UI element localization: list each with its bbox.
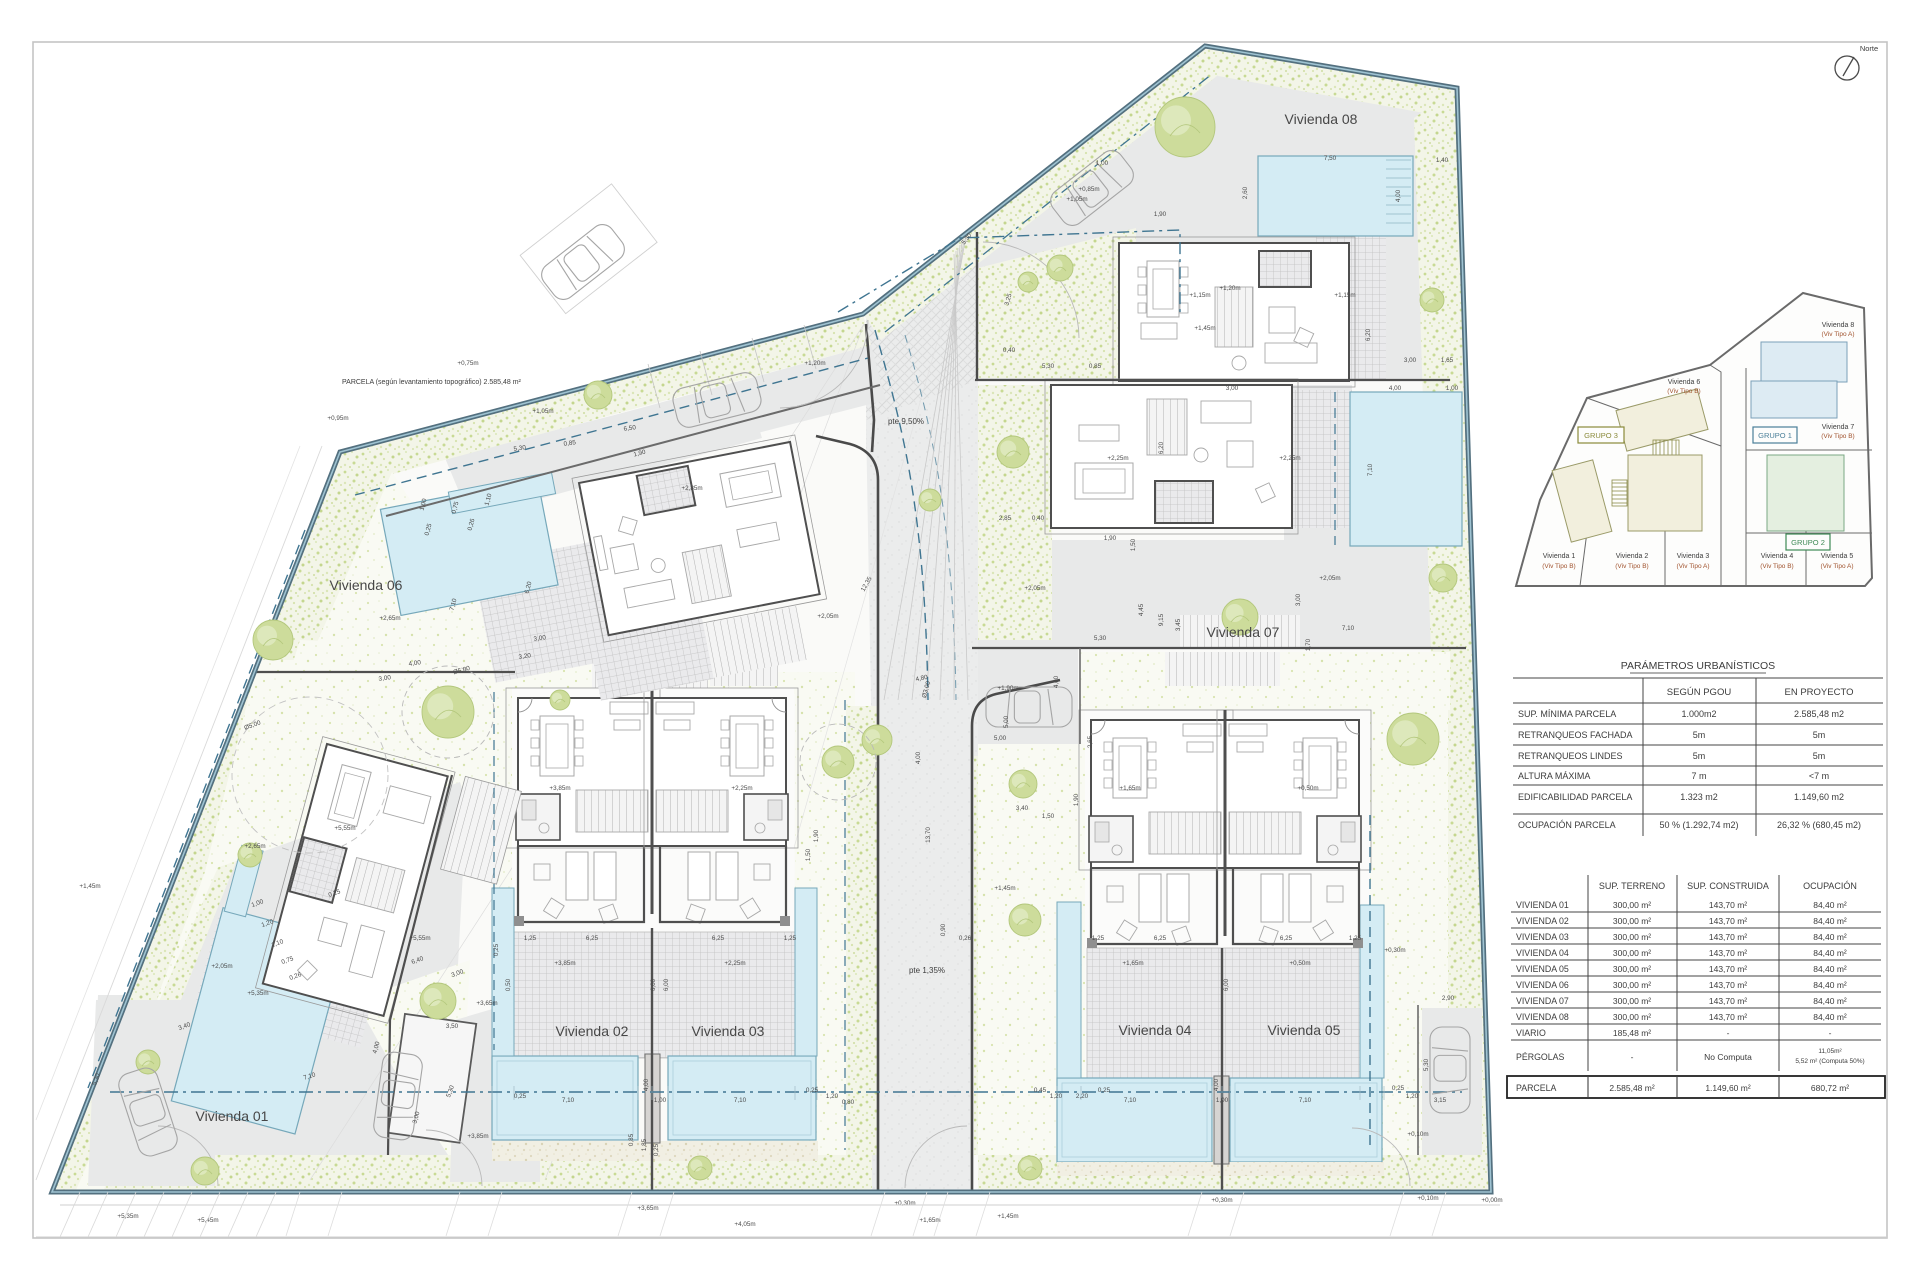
svg-text:+2,25m: +2,25m [724, 960, 745, 967]
svg-text:1,20: 1,20 [1406, 1093, 1419, 1100]
svg-text:pte 1,35%: pte 1,35% [909, 966, 945, 975]
svg-text:300,00 m²: 300,00 m² [1613, 996, 1651, 1006]
svg-text:VIVIENDA 04: VIVIENDA 04 [1516, 948, 1569, 958]
svg-text:1.149,60 m2: 1.149,60 m2 [1794, 792, 1844, 802]
svg-text:1,85: 1,85 [641, 1138, 648, 1151]
svg-text:+4,05m: +4,05m [734, 1221, 755, 1228]
svg-text:4,00: 4,00 [1395, 189, 1402, 202]
svg-text:6,00: 6,00 [650, 978, 657, 991]
svg-text:1,65: 1,65 [1441, 357, 1454, 364]
svg-text:+1,05m: +1,05m [1066, 196, 1087, 203]
svg-text:EDIFICABILIDAD PARCELA: EDIFICABILIDAD PARCELA [1518, 792, 1632, 802]
svg-text:0,85: 0,85 [1089, 363, 1102, 370]
svg-text:11,05m²: 11,05m² [1818, 1048, 1842, 1055]
svg-text:0,25: 0,25 [653, 1143, 660, 1156]
svg-text:Vivienda 06: Vivienda 06 [330, 577, 403, 593]
svg-text:3,00: 3,00 [1295, 593, 1302, 606]
svg-text:VIVIENDA 02: VIVIENDA 02 [1516, 916, 1569, 926]
svg-text:(Viv Tipo A): (Viv Tipo A) [1821, 331, 1854, 338]
svg-text:(Viv Tipo B): (Viv Tipo B) [1542, 563, 1575, 570]
svg-text:+1,20m: +1,20m [1219, 285, 1240, 292]
svg-text:1,25: 1,25 [524, 935, 537, 942]
svg-text:143,70 m²: 143,70 m² [1709, 1012, 1747, 1022]
svg-text:VIVIENDA 06: VIVIENDA 06 [1516, 980, 1569, 990]
svg-text:5,52 m² (Computa 50%): 5,52 m² (Computa 50%) [1795, 1058, 1864, 1065]
svg-text:50 % (1.292,74 m2): 50 % (1.292,74 m2) [1659, 820, 1738, 830]
svg-text:+0,95m: +0,95m [327, 415, 348, 422]
svg-text:0,25: 0,25 [1098, 1087, 1111, 1094]
svg-text:5m: 5m [1813, 730, 1826, 740]
svg-text:+1,15m: +1,15m [1334, 292, 1355, 299]
svg-text:+0,10m: +0,10m [1417, 1195, 1438, 1202]
svg-text:0,85: 0,85 [628, 1133, 635, 1146]
svg-text:Vivienda 7: Vivienda 7 [1822, 424, 1855, 431]
svg-text:pte 9,50%: pte 9,50% [888, 417, 924, 426]
svg-text:1,90: 1,90 [1073, 793, 1080, 806]
svg-text:5m: 5m [1813, 751, 1826, 761]
svg-text:6,25: 6,25 [586, 935, 599, 942]
svg-text:1,70: 1,70 [1305, 638, 1312, 651]
svg-text:3,00: 3,00 [1226, 385, 1239, 392]
svg-text:1,20: 1,20 [1050, 1093, 1063, 1100]
svg-text:0,26: 0,26 [959, 935, 972, 942]
svg-text:185,48 m²: 185,48 m² [1613, 1028, 1651, 1038]
svg-text:Vivienda 2: Vivienda 2 [1616, 553, 1649, 560]
svg-text:1,50: 1,50 [805, 848, 812, 861]
svg-text:143,70 m²: 143,70 m² [1709, 900, 1747, 910]
svg-text:84,40 m²: 84,40 m² [1813, 996, 1847, 1006]
svg-text:+5,35m: +5,35m [117, 1213, 138, 1220]
svg-text:6,20: 6,20 [1158, 441, 1165, 454]
svg-text:4,00: 4,00 [1389, 385, 1402, 392]
svg-text:2.585,48 m²: 2.585,48 m² [1609, 1083, 1655, 1093]
svg-text:84,40 m²: 84,40 m² [1813, 932, 1847, 942]
svg-text:5,00: 5,00 [1003, 715, 1010, 728]
svg-text:0,80: 0,80 [842, 1099, 855, 1106]
svg-text:0,90: 0,90 [940, 923, 947, 936]
svg-text:7,50: 7,50 [1324, 155, 1337, 162]
svg-text:SEGÚN PGOU: SEGÚN PGOU [1667, 687, 1732, 698]
svg-text:+3,65m: +3,65m [476, 1000, 497, 1007]
svg-text:+3,65m: +3,65m [637, 1205, 658, 1212]
svg-text:+1,45m: +1,45m [79, 883, 100, 890]
svg-text:5,30: 5,30 [1423, 1058, 1430, 1071]
svg-text:300,00 m²: 300,00 m² [1613, 932, 1651, 942]
svg-text:PÉRGOLAS: PÉRGOLAS [1516, 1052, 1565, 1062]
svg-text:SUP. MÍNIMA PARCELA: SUP. MÍNIMA PARCELA [1518, 709, 1616, 719]
svg-text:1,00: 1,00 [1096, 160, 1109, 167]
svg-text:+2,05m: +2,05m [817, 613, 838, 620]
svg-text:+1,05m: +1,05m [532, 408, 553, 415]
svg-text:-: - [1829, 1028, 1832, 1038]
svg-text:+2,05m: +2,05m [211, 963, 232, 970]
svg-text:84,40 m²: 84,40 m² [1813, 980, 1847, 990]
svg-text:+2,25m: +2,25m [731, 785, 752, 792]
svg-text:680,72 m²: 680,72 m² [1811, 1083, 1849, 1093]
svg-text:84,40 m²: 84,40 m² [1813, 916, 1847, 926]
svg-text:2,60: 2,60 [1242, 186, 1249, 199]
svg-text:Vivienda 02: Vivienda 02 [556, 1023, 629, 1039]
svg-text:+2,25m: +2,25m [1107, 455, 1128, 462]
svg-text:ALTURA MÁXIMA: ALTURA MÁXIMA [1518, 771, 1590, 781]
svg-text:7,10: 7,10 [734, 1097, 747, 1104]
svg-text:<7 m: <7 m [1809, 771, 1829, 781]
svg-text:Vivienda 07: Vivienda 07 [1207, 624, 1280, 640]
svg-text:6,25: 6,25 [1280, 935, 1293, 942]
svg-text:1,90: 1,90 [813, 829, 820, 842]
svg-text:6,00: 6,00 [663, 978, 670, 991]
svg-text:84,40 m²: 84,40 m² [1813, 948, 1847, 958]
svg-text:1,50: 1,50 [1130, 538, 1137, 551]
svg-text:+5,55m: +5,55m [334, 825, 355, 832]
svg-text:143,70 m²: 143,70 m² [1709, 996, 1747, 1006]
svg-text:PARÁMETROS URBANÍSTICOS: PARÁMETROS URBANÍSTICOS [1621, 659, 1775, 672]
svg-text:1,00: 1,00 [1446, 385, 1459, 392]
svg-text:+2,25m: +2,25m [1279, 455, 1300, 462]
svg-text:1.000m2: 1.000m2 [1681, 709, 1716, 719]
svg-text:+1,65m: +1,65m [1119, 785, 1140, 792]
svg-text:VIVIENDA 03: VIVIENDA 03 [1516, 932, 1569, 942]
svg-text:4,00: 4,00 [1053, 675, 1060, 688]
svg-text:+1,20m: +1,20m [804, 360, 825, 367]
svg-text:3,40: 3,40 [1016, 805, 1029, 812]
svg-text:4,00: 4,00 [1213, 1078, 1220, 1091]
svg-text:+0,85m: +0,85m [1078, 186, 1099, 193]
svg-text:5,00: 5,00 [994, 735, 1007, 742]
svg-text:+0,30m: +0,30m [1384, 947, 1405, 954]
svg-text:-: - [1727, 1028, 1730, 1038]
svg-text:7,10: 7,10 [1342, 625, 1355, 632]
svg-text:84,40 m²: 84,40 m² [1813, 964, 1847, 974]
svg-text:300,00 m²: 300,00 m² [1613, 1012, 1651, 1022]
svg-text:6,25: 6,25 [1154, 935, 1167, 942]
svg-text:4,00: 4,00 [915, 751, 922, 764]
svg-text:0,45: 0,45 [1034, 1087, 1047, 1094]
svg-text:Vivienda 5: Vivienda 5 [1821, 553, 1854, 560]
svg-text:(Viv Tipo B): (Viv Tipo B) [1615, 563, 1648, 570]
svg-text:-: - [1631, 1052, 1634, 1062]
svg-text:+0,00m: +0,00m [1481, 1197, 1502, 1204]
svg-text:26,32 % (680,45 m2): 26,32 % (680,45 m2) [1777, 820, 1861, 830]
svg-text:+0,30m: +0,30m [894, 1200, 915, 1207]
svg-text:1,25: 1,25 [1349, 935, 1362, 942]
svg-text:+2,05m: +2,05m [1319, 575, 1340, 582]
svg-text:+0,75m: +0,75m [457, 360, 478, 367]
svg-text:+3,85m: +3,85m [549, 785, 570, 792]
svg-text:5,30: 5,30 [1094, 635, 1107, 642]
svg-text:300,00 m²: 300,00 m² [1613, 980, 1651, 990]
svg-text:2,90: 2,90 [1442, 995, 1455, 1002]
svg-text:+0,50m: +0,50m [1297, 785, 1318, 792]
svg-text:+1,65m: +1,65m [919, 1217, 940, 1224]
svg-text:+0,10m: +0,10m [1407, 1131, 1428, 1138]
svg-text:Vivienda 08: Vivienda 08 [1285, 111, 1358, 127]
svg-text:84,40 m²: 84,40 m² [1813, 1012, 1847, 1022]
svg-text:PARCELA: PARCELA [1516, 1083, 1557, 1093]
svg-text:GRUPO 1: GRUPO 1 [1758, 431, 1792, 440]
svg-text:Vivienda 04: Vivienda 04 [1119, 1022, 1192, 1038]
svg-text:0,25: 0,25 [806, 1087, 819, 1094]
svg-text:1,90: 1,90 [1154, 211, 1167, 218]
svg-text:84,40 m²: 84,40 m² [1813, 900, 1847, 910]
svg-text:+5,35m: +5,35m [247, 990, 268, 997]
svg-text:1.323 m2: 1.323 m2 [1680, 792, 1718, 802]
svg-text:+1,90m: +1,90m [997, 685, 1018, 692]
svg-text:RETRANQUEOS FACHADA: RETRANQUEOS FACHADA [1518, 730, 1633, 740]
svg-text:6,20: 6,20 [1365, 328, 1372, 341]
svg-text:1,25: 1,25 [1092, 935, 1105, 942]
svg-text:13,70: 13,70 [925, 827, 932, 843]
svg-text:0,40: 0,40 [1032, 515, 1045, 522]
svg-text:VIVIENDA 01: VIVIENDA 01 [1516, 900, 1569, 910]
svg-text:VIARIO: VIARIO [1516, 1028, 1546, 1038]
svg-text:No Computa: No Computa [1704, 1052, 1752, 1062]
svg-text:Vivienda 03: Vivienda 03 [692, 1023, 765, 1039]
svg-text:Vivienda 3: Vivienda 3 [1677, 553, 1710, 560]
svg-text:PARCELA (según levantamiento t: PARCELA (según levantamiento topográfico… [342, 379, 522, 386]
svg-text:GRUPO 2: GRUPO 2 [1791, 538, 1825, 547]
svg-text:7,10: 7,10 [1367, 463, 1374, 476]
svg-text:(Viv Tipo B): (Viv Tipo B) [1760, 563, 1793, 570]
svg-text:0,25: 0,25 [493, 943, 500, 956]
svg-text:300,00 m²: 300,00 m² [1613, 948, 1651, 958]
svg-text:4,45: 4,45 [1138, 603, 1145, 616]
svg-text:OCUPACIÓN: OCUPACIÓN [1803, 881, 1857, 891]
svg-text:+0,50m: +0,50m [1289, 960, 1310, 967]
svg-text:VIVIENDA 07: VIVIENDA 07 [1516, 996, 1569, 1006]
svg-text:2,20: 2,20 [1076, 1093, 1089, 1100]
svg-text:+2,85m: +2,85m [681, 485, 702, 492]
svg-text:5m: 5m [1693, 730, 1706, 740]
svg-text:2,85: 2,85 [999, 515, 1012, 522]
svg-text:1,90: 1,90 [1104, 535, 1117, 542]
svg-text:1,40: 1,40 [1436, 157, 1449, 164]
svg-text:Vivienda 6: Vivienda 6 [1668, 379, 1701, 386]
svg-text:SUP. TERRENO: SUP. TERRENO [1599, 881, 1665, 891]
svg-text:+2,65m: +2,65m [244, 843, 265, 850]
svg-text:300,00 m²: 300,00 m² [1613, 964, 1651, 974]
svg-text:3,15: 3,15 [1434, 1097, 1447, 1104]
svg-text:3,00: 3,00 [1404, 357, 1417, 364]
svg-text:EN PROYECTO: EN PROYECTO [1785, 687, 1854, 698]
svg-text:Vivienda 05: Vivienda 05 [1268, 1022, 1341, 1038]
svg-text:6,25: 6,25 [712, 935, 725, 942]
svg-text:+5,55m: +5,55m [409, 935, 430, 942]
svg-text:143,70 m²: 143,70 m² [1709, 948, 1747, 958]
svg-text:3,50: 3,50 [446, 1023, 459, 1030]
svg-text:+3,85m: +3,85m [554, 960, 575, 967]
svg-text:+2,05m: +2,05m [1024, 585, 1045, 592]
svg-text:5,30: 5,30 [1042, 363, 1055, 370]
svg-text:7,10: 7,10 [1124, 1097, 1137, 1104]
svg-text:2.585,48 m2: 2.585,48 m2 [1794, 709, 1844, 719]
svg-text:6,00: 6,00 [1223, 978, 1230, 991]
svg-text:1,25: 1,25 [784, 935, 797, 942]
svg-text:(Viv Tipo B): (Viv Tipo B) [1821, 433, 1854, 440]
svg-text:Vivienda 4: Vivienda 4 [1761, 553, 1794, 560]
svg-text:5m: 5m [1693, 751, 1706, 761]
svg-text:RETRANQUEOS LINDES: RETRANQUEOS LINDES [1518, 751, 1623, 761]
svg-text:+1,45m: +1,45m [994, 885, 1015, 892]
svg-text:143,70 m²: 143,70 m² [1709, 980, 1747, 990]
svg-text:0,40: 0,40 [1003, 347, 1016, 354]
svg-text:7 m: 7 m [1691, 771, 1706, 781]
svg-text:+1,45m: +1,45m [1194, 325, 1215, 332]
svg-text:+3,85m: +3,85m [467, 1133, 488, 1140]
svg-text:1,20: 1,20 [826, 1093, 839, 1100]
svg-text:300,00 m²: 300,00 m² [1613, 916, 1651, 926]
svg-text:Vivienda 1: Vivienda 1 [1543, 553, 1576, 560]
svg-text:9,15: 9,15 [1158, 613, 1165, 626]
svg-text:+1,45m: +1,45m [997, 1213, 1018, 1220]
svg-text:Vivienda 8: Vivienda 8 [1822, 322, 1855, 329]
svg-text:(Viv Tipo A): (Viv Tipo A) [1820, 563, 1853, 570]
svg-text:0,25: 0,25 [514, 1093, 527, 1100]
svg-text:(Viv Tipo A): (Viv Tipo A) [1676, 563, 1709, 570]
svg-text:VIVIENDA 05: VIVIENDA 05 [1516, 964, 1569, 974]
svg-text:3,45: 3,45 [1175, 618, 1182, 631]
svg-text:300,00 m²: 300,00 m² [1613, 900, 1651, 910]
svg-text:Norte: Norte [1860, 44, 1878, 53]
svg-text:143,70 m²: 143,70 m² [1709, 932, 1747, 942]
svg-text:143,70 m²: 143,70 m² [1709, 916, 1747, 926]
svg-text:+1,65m: +1,65m [1122, 960, 1143, 967]
svg-text:OCUPACIÓN PARCELA: OCUPACIÓN PARCELA [1518, 820, 1616, 830]
svg-text:SUP. CONSTRUIDA: SUP. CONSTRUIDA [1687, 881, 1769, 891]
svg-text:2,65: 2,65 [1087, 735, 1094, 748]
svg-text:Vivienda 01: Vivienda 01 [196, 1108, 269, 1124]
svg-text:(Viv Tipo B): (Viv Tipo B) [1667, 388, 1700, 395]
svg-text:0,50: 0,50 [505, 978, 512, 991]
svg-text:VIVIENDA 08: VIVIENDA 08 [1516, 1012, 1569, 1022]
svg-text:+0,30m: +0,30m [1211, 1197, 1232, 1204]
svg-text:+2,65m: +2,65m [379, 615, 400, 622]
svg-text:4,00: 4,00 [643, 1078, 650, 1091]
svg-text:7,10: 7,10 [562, 1097, 575, 1104]
svg-text:0,25: 0,25 [1392, 1085, 1405, 1092]
svg-text:1,50: 1,50 [1042, 813, 1055, 820]
svg-text:1.149,60 m²: 1.149,60 m² [1705, 1083, 1751, 1093]
svg-text:1,00: 1,00 [654, 1097, 667, 1104]
svg-text:GRUPO 3: GRUPO 3 [1584, 431, 1618, 440]
svg-text:+1,15m: +1,15m [1189, 292, 1210, 299]
svg-text:7,10: 7,10 [1299, 1097, 1312, 1104]
svg-text:143,70 m²: 143,70 m² [1709, 964, 1747, 974]
svg-text:1,00: 1,00 [1216, 1097, 1229, 1104]
